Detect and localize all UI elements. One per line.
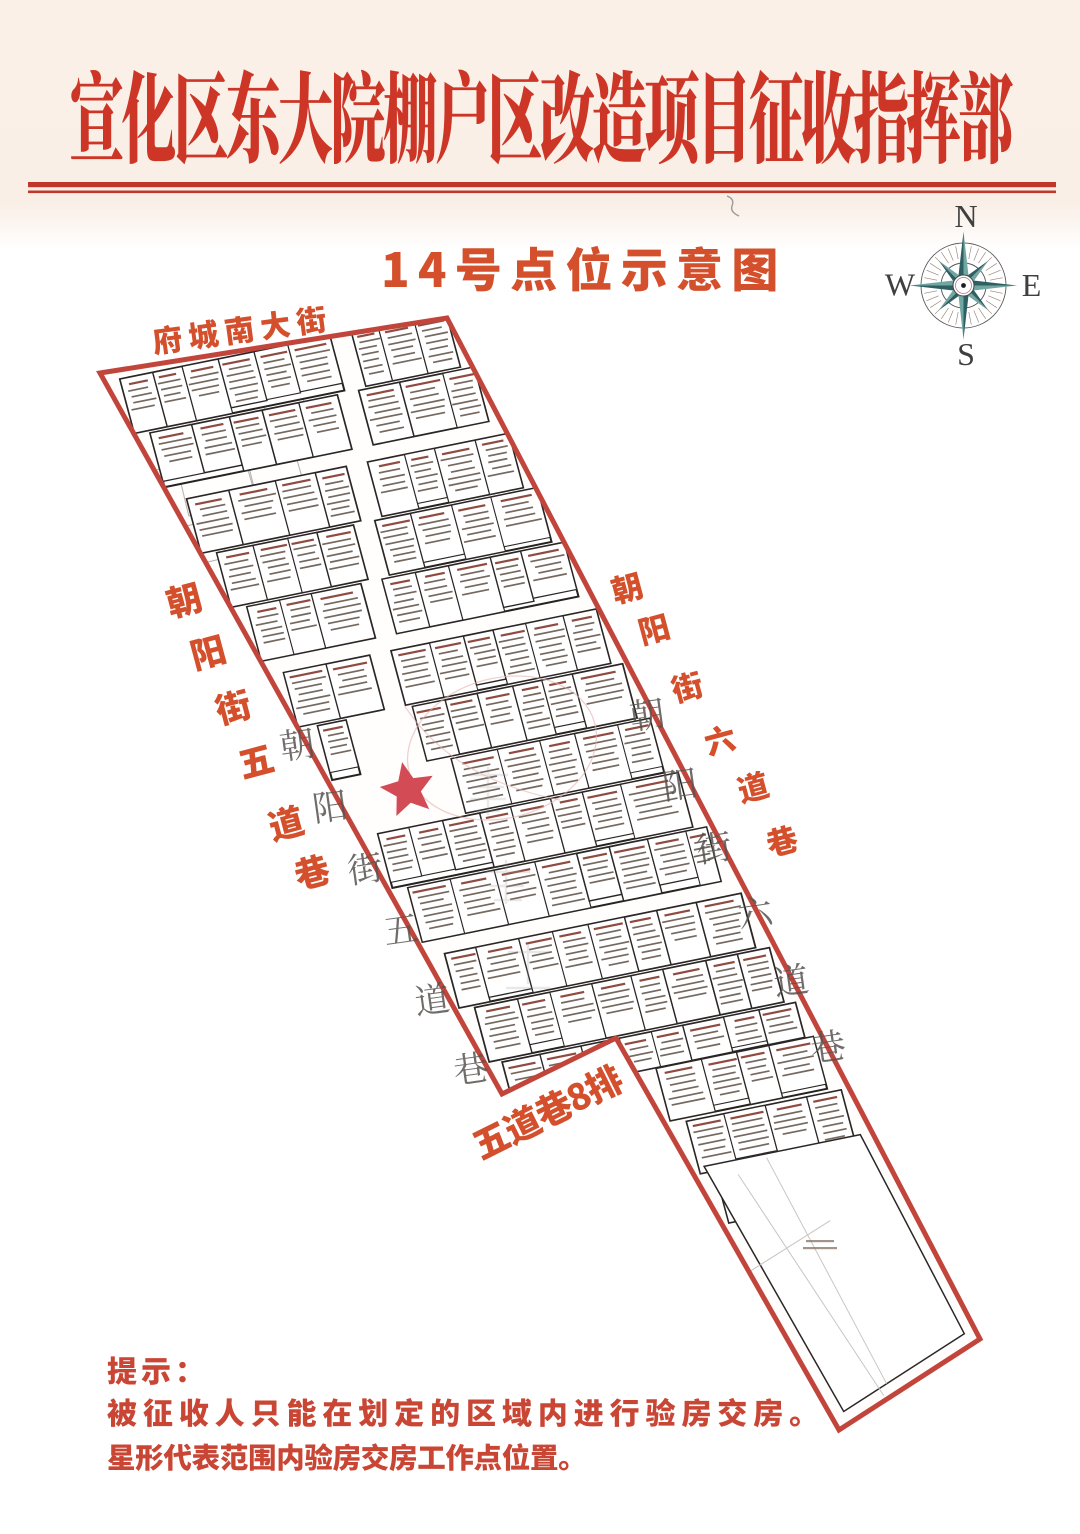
svg-text:S: S [957, 336, 975, 372]
svg-text:E: E [1022, 267, 1042, 303]
svg-text:W: W [885, 267, 916, 303]
svg-text:N: N [954, 198, 977, 234]
